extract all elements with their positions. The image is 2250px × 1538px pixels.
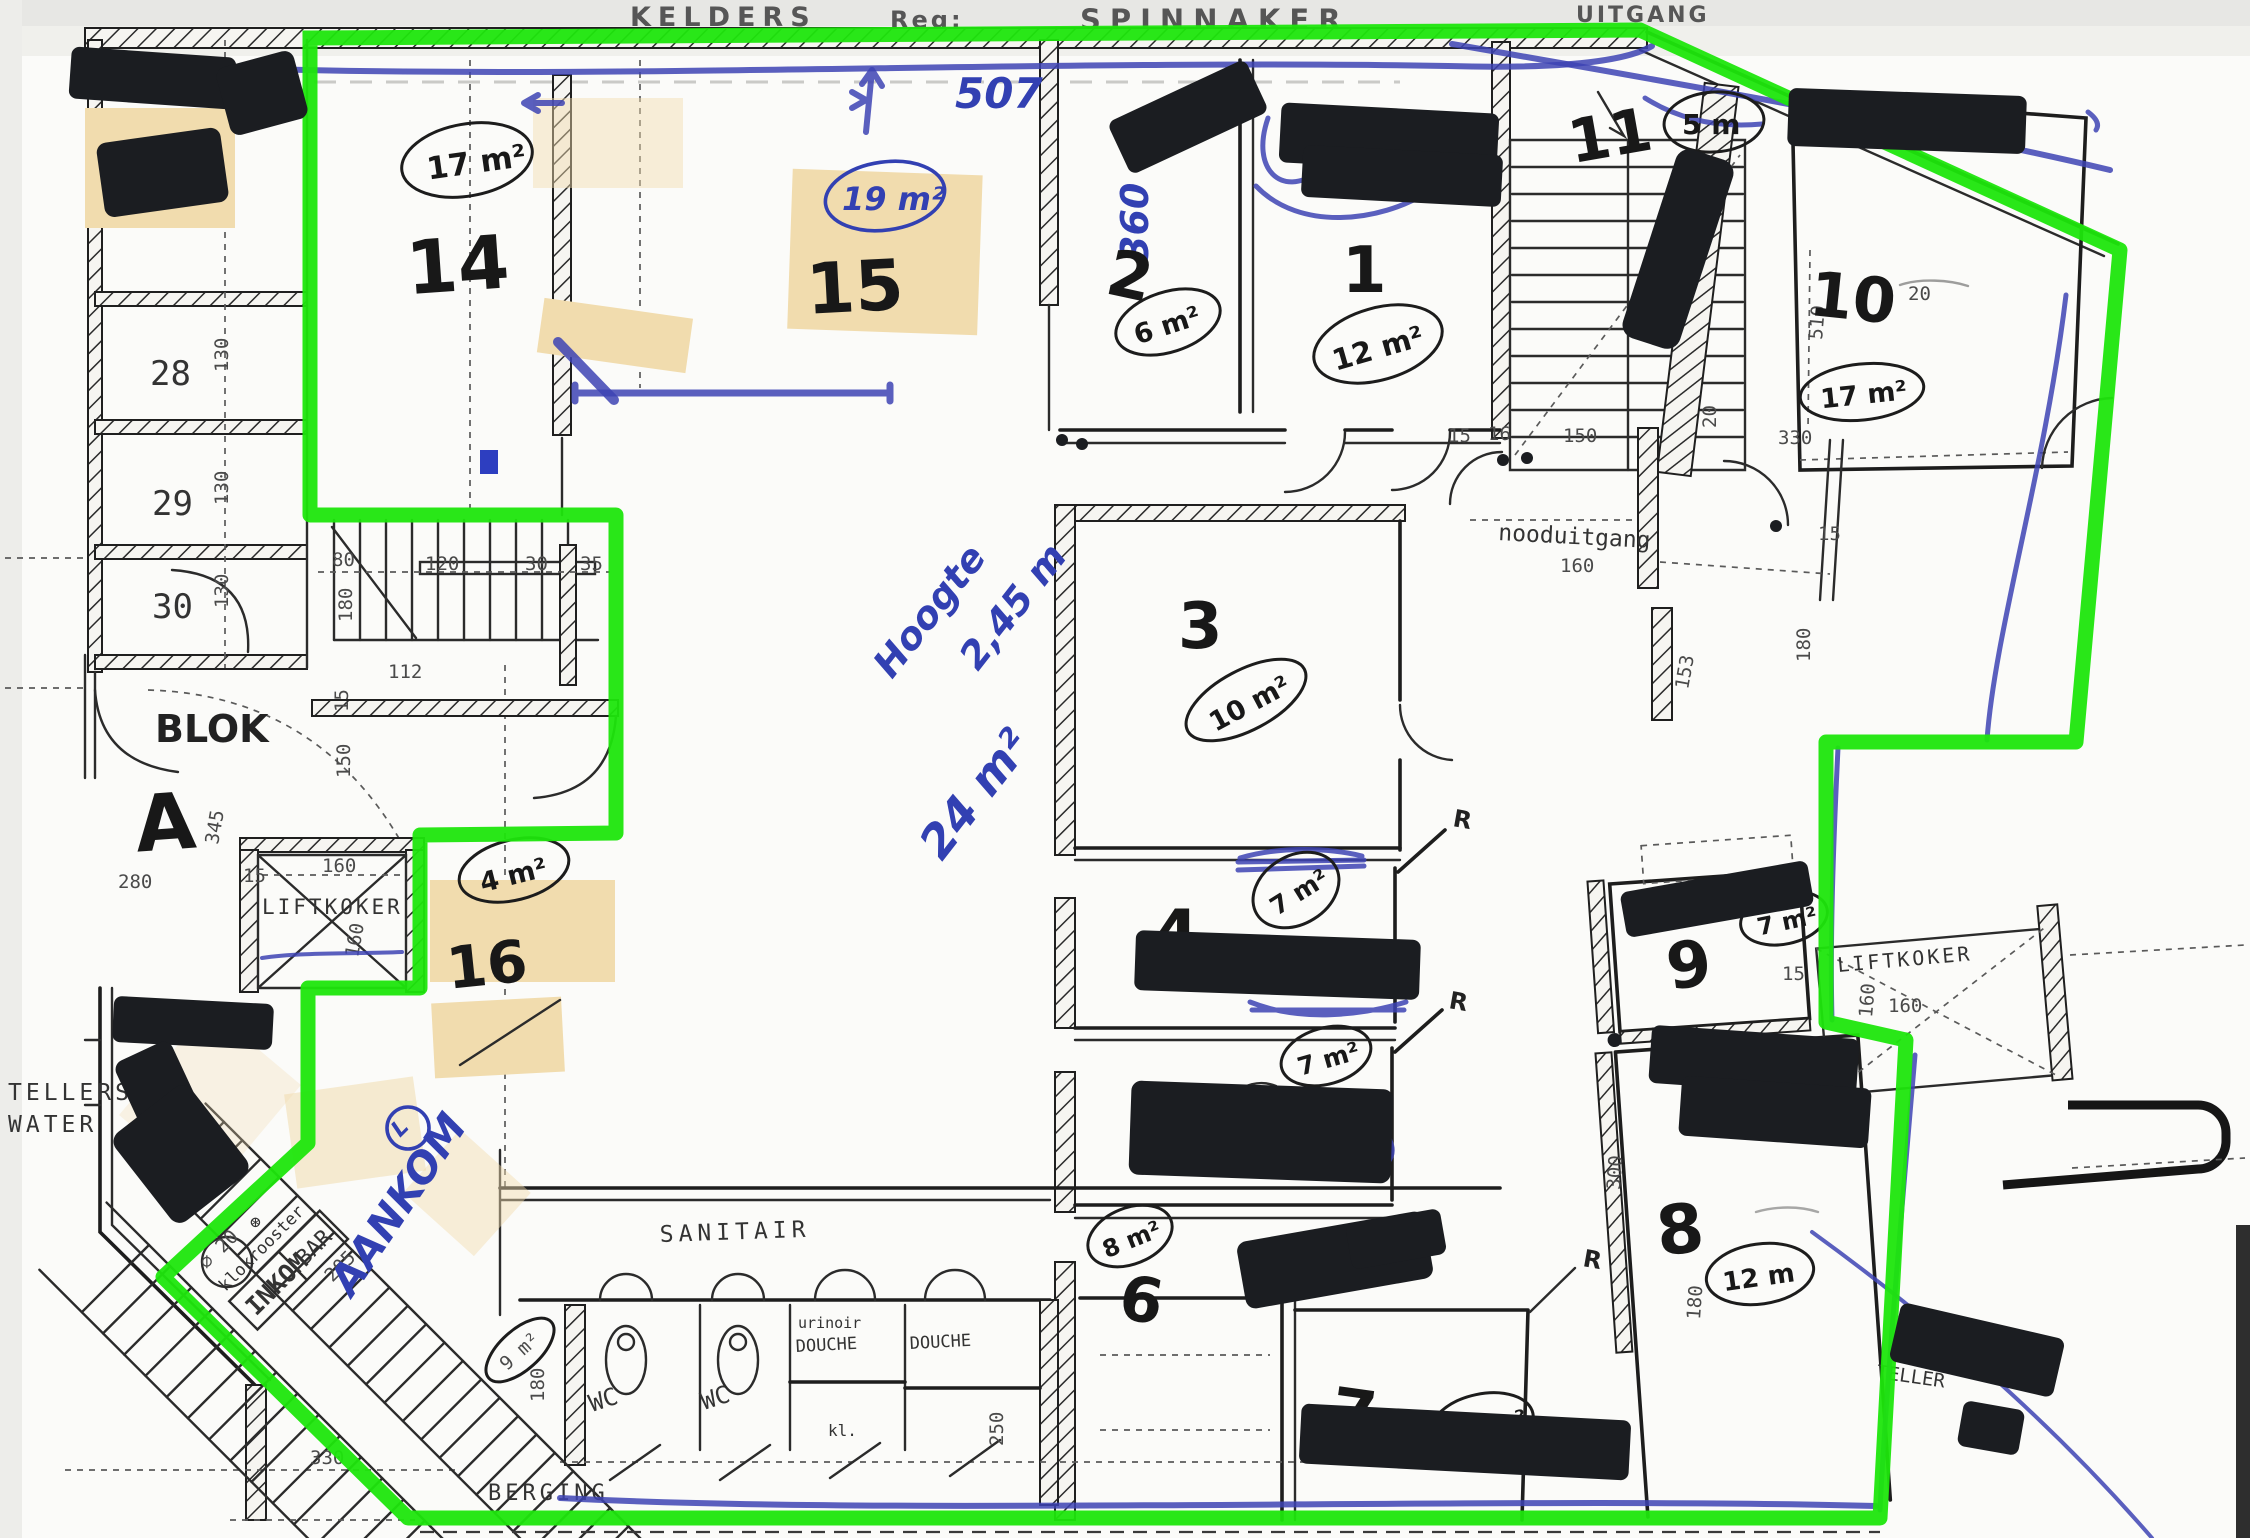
redaction-bar (112, 996, 274, 1050)
dim-250: 250 (986, 1412, 1008, 1446)
dim-345: 345 (201, 808, 229, 846)
dim-112: 112 (388, 661, 422, 683)
douche2-label: DOUCHE (909, 1331, 971, 1354)
door-r-label: R (1581, 1244, 1604, 1275)
dim-20: 20 (1908, 283, 1931, 305)
redaction-bar (1787, 88, 2027, 154)
blok-label: BLOK (155, 707, 270, 751)
dim-16: 16 (1488, 423, 1511, 445)
door-r-label: R (1451, 804, 1474, 835)
redaction-bar (1128, 1080, 1393, 1183)
dim-20: 20 (1699, 405, 1721, 428)
svg-text:15: 15 (804, 244, 906, 331)
svg-text:10: 10 (1806, 257, 1899, 339)
vent-symbol: ⊛ (250, 1212, 261, 1233)
area-24-note: 24 m² (908, 719, 1042, 869)
dim-280: 280 (118, 871, 152, 893)
svg-text:8: 8 (1653, 1189, 1708, 1273)
wc1-label: WC (585, 1382, 621, 1418)
svg-text:5 m: 5 m (1682, 108, 1740, 141)
dim-15: 15 (243, 865, 266, 887)
dim-130: 130 (211, 574, 233, 608)
svg-text:14: 14 (403, 219, 512, 312)
svg-text:12 m: 12 m (1721, 1258, 1797, 1298)
floor-plan-scan: KELDERS Reg: SPINNAKER UITGANG (0, 0, 2250, 1538)
liftkoker-right-label: LIFTKOKER (1836, 941, 1973, 977)
sticker (533, 98, 683, 188)
blok-letter: A (132, 777, 199, 871)
wc2-label: WC (697, 1380, 733, 1416)
svg-text:8 m²: 8 m² (1098, 1215, 1165, 1264)
room-14: 17 m² 14 (396, 113, 538, 312)
dim-15: 15 (1818, 523, 1841, 545)
dim-80: 80 (332, 549, 355, 571)
redaction-bar (1134, 930, 1421, 1000)
dim-130: 130 (211, 338, 233, 372)
douche1-label: DOUCHE (795, 1334, 857, 1357)
dim-9m2: 9 m² (475, 1307, 564, 1393)
sanitair-label: SANITAIR (659, 1217, 811, 1248)
svg-text:17 m²: 17 m² (1819, 375, 1909, 415)
svg-text:19 m²: 19 m² (842, 180, 945, 218)
cell-30: 30 (152, 587, 193, 627)
cell-29: 29 (152, 484, 193, 524)
dim-160: 160 (1888, 995, 1922, 1017)
redaction-bar (1956, 1400, 2025, 1456)
room-6: 6 8 m² (1079, 1194, 1182, 1340)
dim-160: 160 (1560, 555, 1594, 577)
dim-153: 153 (1671, 653, 1699, 691)
dim-180: 180 (527, 1368, 549, 1402)
dim-15: 15 (1448, 425, 1471, 447)
blue-mark (480, 450, 498, 474)
nooduitgang-label: nooduitgang (1498, 520, 1651, 554)
room-annotations: 17 m² 14 19 m² 15 2 6 m² 1 12 m² 11 5 m … (396, 89, 1968, 1465)
liftkoker-left-label: LIFTKOKER (262, 895, 403, 919)
dim-130: 130 (211, 471, 233, 505)
svg-text:11: 11 (1563, 95, 1657, 178)
svg-text:9: 9 (1662, 926, 1716, 1005)
dim-160: 160 (322, 855, 356, 877)
room-8: 8 12 m (1653, 1189, 1818, 1311)
svg-text:16: 16 (443, 927, 530, 1003)
dim-120: 120 (425, 553, 459, 575)
room-10: 10 17 m² (1797, 257, 1968, 426)
dim-150: 150 (1563, 425, 1597, 447)
door-r-label: R (1447, 986, 1470, 1017)
kic-label: kl. (828, 1421, 857, 1440)
room-3: 3 10 m² (1174, 590, 1319, 757)
dim-160: 160 (1855, 982, 1880, 1018)
tellers-label-1: TELLERS (8, 1080, 133, 1106)
staircase-top-left (312, 520, 618, 798)
redaction-bar (1107, 59, 1269, 176)
dim-507-blue: 507 (955, 69, 1043, 118)
rooms-9-8 (1581, 832, 1890, 1519)
svg-text:2: 2 (1100, 236, 1159, 318)
dim-180: 180 (1683, 1285, 1707, 1321)
dim-15: 15 (331, 689, 353, 712)
svg-text:1: 1 (1342, 234, 1387, 308)
urinoir-label: urinoir (798, 1314, 861, 1332)
dim-180: 180 (1793, 628, 1815, 662)
dim-30: 30 (525, 553, 548, 575)
dim-180: 180 (335, 588, 357, 622)
dim-300: 300 (1603, 1155, 1627, 1191)
dim-35: 35 (580, 553, 603, 575)
tellers-label-2: WATER (8, 1112, 97, 1138)
cell-28: 28 (150, 354, 191, 394)
svg-text:3: 3 (1178, 590, 1223, 664)
dim-15: 15 (1782, 963, 1805, 985)
redaction-bar (1299, 1403, 1632, 1480)
plan-svg: KELDERS Reg: SPINNAKER UITGANG (0, 0, 2250, 1538)
room-2: 2 6 m² (1100, 236, 1228, 367)
svg-text:6: 6 (1114, 1260, 1169, 1339)
redaction-bar (1301, 145, 1503, 207)
dim-150: 150 (333, 744, 355, 778)
dim-330: 330 (1778, 427, 1812, 449)
room-1: 1 12 m² (1305, 234, 1452, 397)
